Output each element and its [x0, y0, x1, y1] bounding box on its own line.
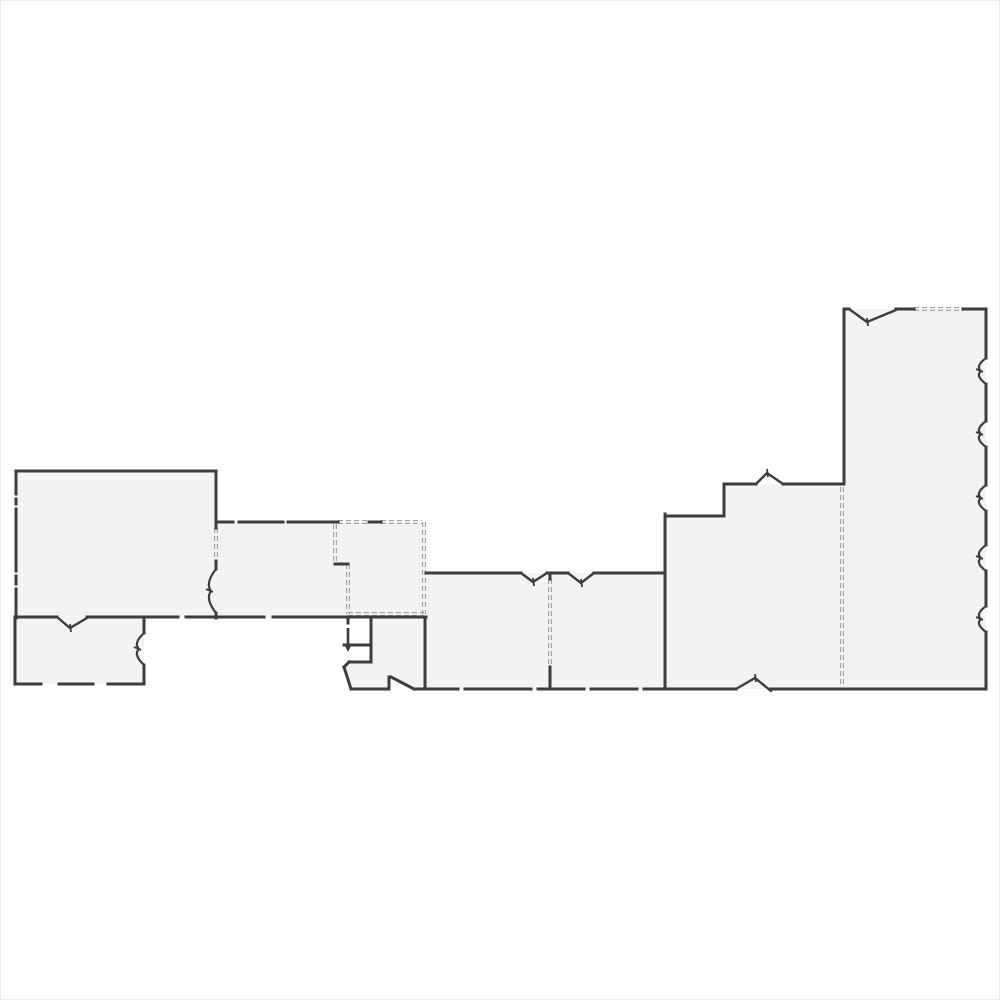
- door-leaf-arrow: [345, 645, 352, 652]
- room-large-left: [16, 471, 216, 617]
- room-middle-left: [216, 522, 426, 617]
- door-chevron-tick: [581, 579, 582, 587]
- door-chevron-tick: [867, 318, 868, 326]
- door-chevron: [756, 473, 783, 484]
- door-chevron-tick: [755, 674, 756, 682]
- room-bottom-left: [15, 617, 144, 684]
- door-chevron-tick: [533, 578, 534, 586]
- room-middle: [426, 573, 664, 689]
- door-chevron-tick: [70, 624, 71, 632]
- door-chevron-tick: [767, 469, 768, 477]
- floorplan-svg: [1, 1, 1000, 1000]
- room-vestibule: [344, 618, 426, 689]
- room-right-section: [665, 309, 986, 689]
- floorplan-canvas: [0, 0, 1000, 1000]
